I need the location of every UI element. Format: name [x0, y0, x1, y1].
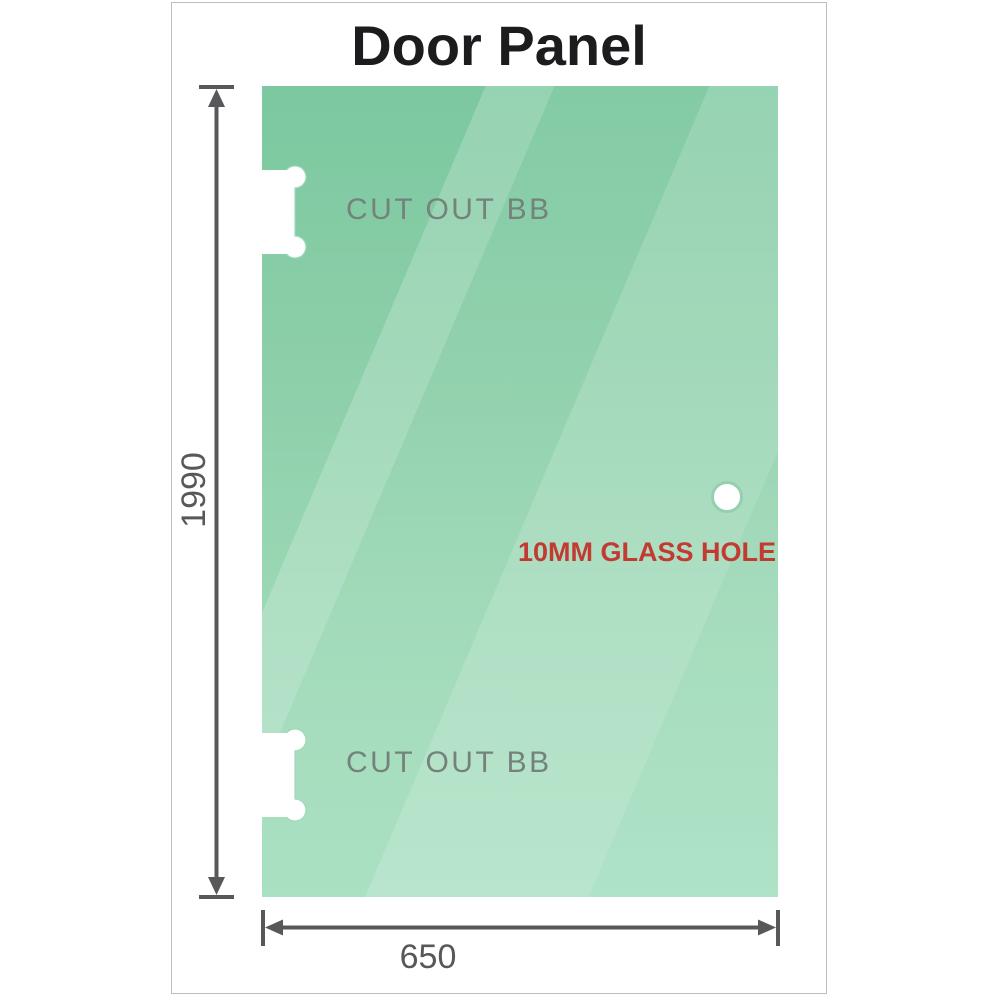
cutout-top-shape	[262, 160, 308, 260]
cutout-bottom-label: CUT OUT BB	[346, 746, 606, 780]
door-panel-diagram: Door Panel CUT OUT BB CUT OUT BB 10MM GL…	[0, 0, 1000, 1000]
cutout-bottom-shape	[262, 723, 308, 823]
glass-hole-icon	[711, 481, 743, 513]
glass-hole-label: 10MM GLASS HOLE	[518, 537, 738, 568]
cutout-top-label: CUT OUT BB	[346, 193, 606, 227]
page-title: Door Panel	[171, 13, 827, 78]
